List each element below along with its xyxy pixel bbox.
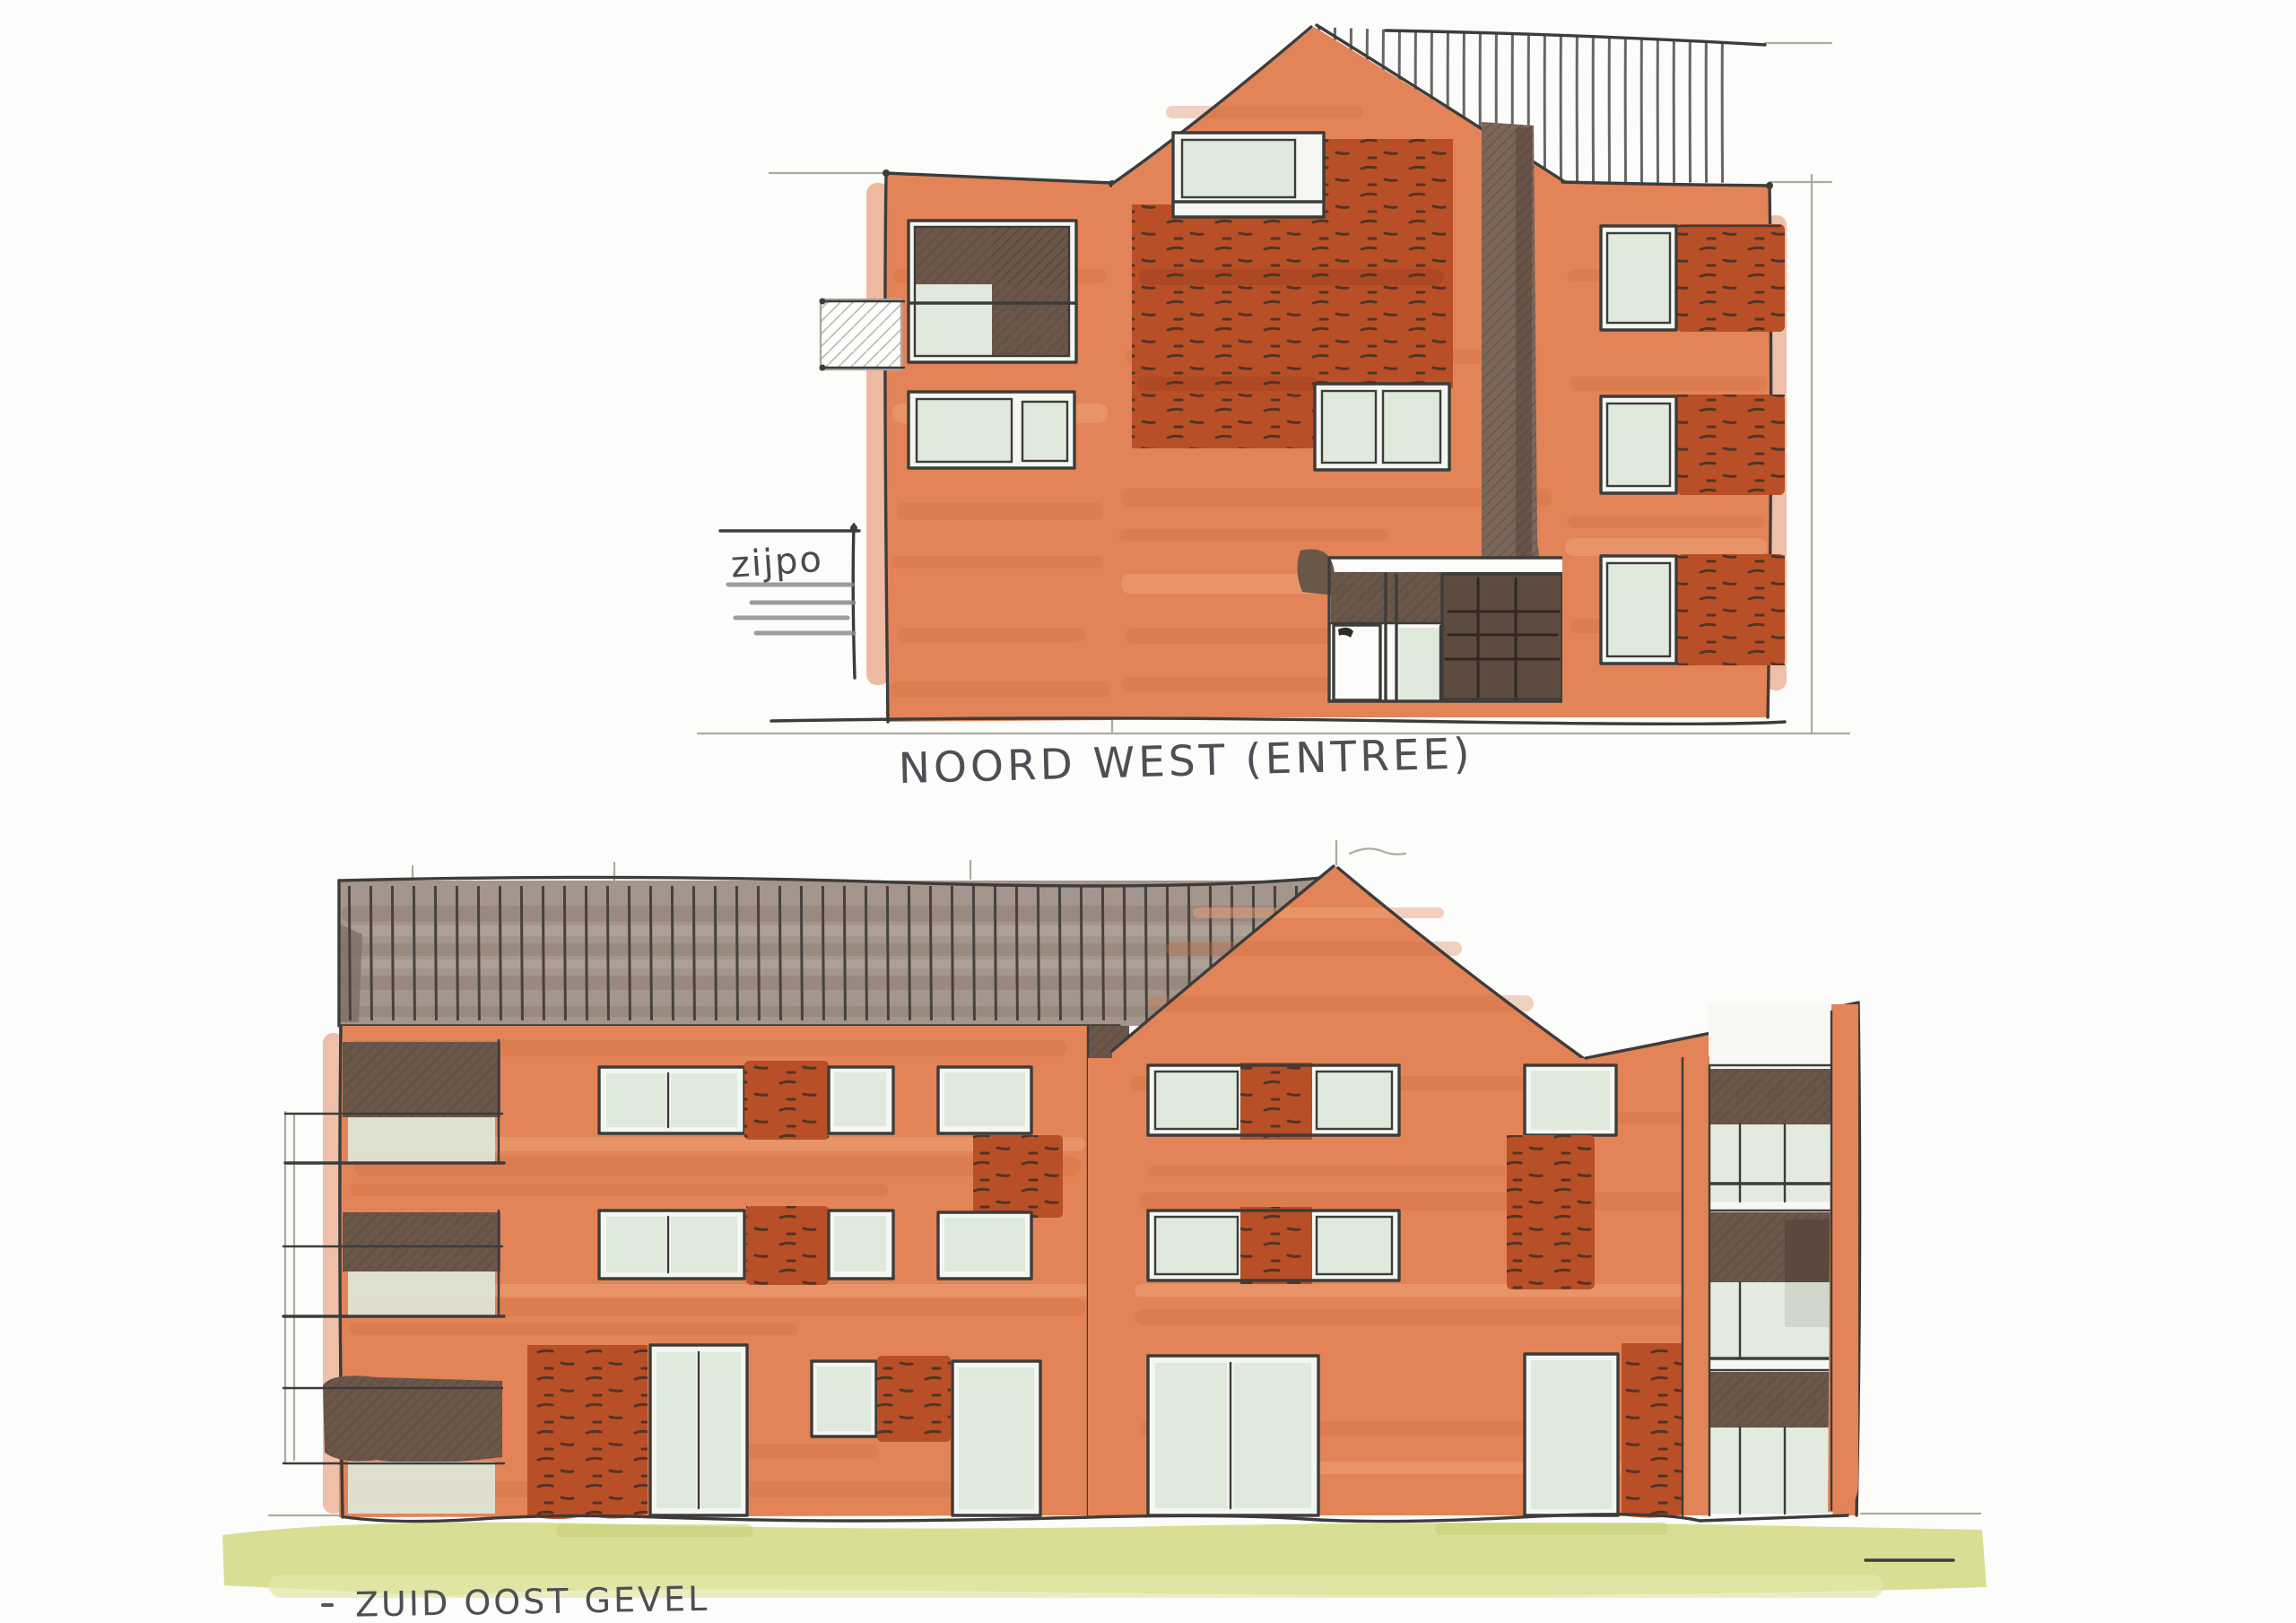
sketch-paper: NAAM zijpo (0, 0, 2296, 1623)
window (1525, 1065, 1616, 1135)
entrance-door (650, 1345, 747, 1515)
brick-panel (527, 1345, 648, 1519)
entrance-stairs (1442, 574, 1562, 699)
balcony (1702, 1211, 1837, 1358)
window (812, 1361, 876, 1436)
margin-note: zijpo (729, 539, 824, 586)
entrance-door (1525, 1354, 1618, 1515)
window (1148, 1063, 1399, 1140)
brick-panel (1622, 1343, 1686, 1518)
sketch-canvas: NAAM zijpo (0, 0, 2296, 1623)
window (909, 221, 1076, 362)
balcony (285, 1040, 504, 1163)
window (952, 1361, 1040, 1515)
balcony (1702, 1370, 1835, 1514)
window (1601, 395, 1785, 495)
brick-panel (973, 1135, 1063, 1218)
facade-gable-block (1112, 25, 1565, 717)
balcony (283, 1211, 504, 1316)
window (909, 392, 1074, 468)
facade-right-block (1562, 181, 1787, 717)
elevation-noord-west: NAAM zijpo (698, 25, 1849, 794)
margin-detail: zijpo (720, 525, 859, 678)
window (829, 1211, 893, 1279)
window (829, 1067, 893, 1133)
window (938, 1212, 1031, 1279)
window (1601, 224, 1785, 332)
window (938, 1067, 1031, 1133)
canopy (820, 299, 905, 371)
brick-panel (746, 1206, 829, 1285)
brick-panel (744, 1061, 829, 1140)
caption-noord-west: NOORD WEST (ENTREE) (898, 729, 1474, 794)
balcony-bay (1683, 1004, 1858, 1515)
elevation-zuid-oost: ZUID OOST GEVEL (222, 841, 1987, 1623)
brick-panel (1507, 1135, 1595, 1289)
entrance-sidelight (1399, 628, 1440, 699)
balcony (283, 1376, 504, 1514)
caption-zuid-oost: ZUID OOST GEVEL (355, 1579, 710, 1623)
brick-panel (877, 1356, 951, 1442)
entrance (1297, 549, 1565, 701)
window (599, 1211, 744, 1279)
window (1315, 384, 1449, 470)
window (599, 1067, 744, 1133)
window (1148, 1356, 1318, 1515)
facade-left-wing (283, 1026, 1090, 1519)
window (1148, 1207, 1399, 1284)
balcony (1702, 1065, 1835, 1202)
window (1173, 133, 1324, 217)
window (1601, 554, 1785, 665)
